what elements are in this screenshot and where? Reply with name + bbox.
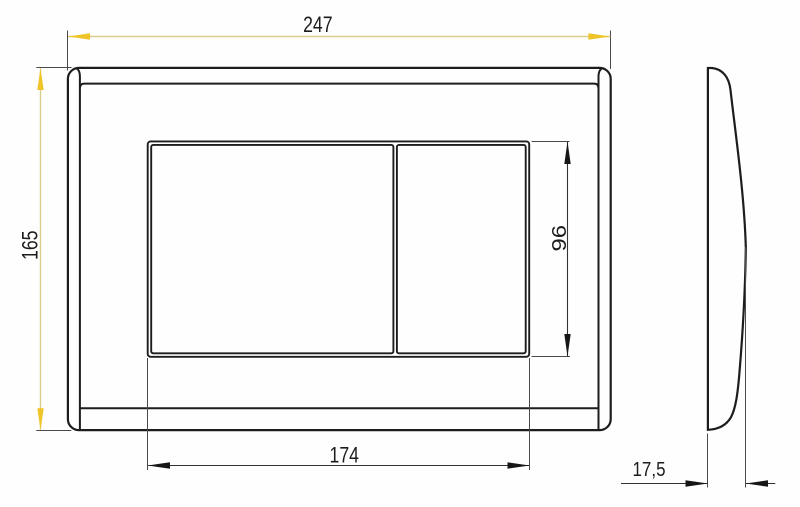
svg-text:165: 165 bbox=[17, 231, 42, 261]
svg-text:174: 174 bbox=[330, 443, 360, 468]
svg-text:17,5: 17,5 bbox=[633, 459, 666, 481]
svg-text:247: 247 bbox=[303, 12, 333, 37]
svg-text:96: 96 bbox=[549, 225, 571, 252]
